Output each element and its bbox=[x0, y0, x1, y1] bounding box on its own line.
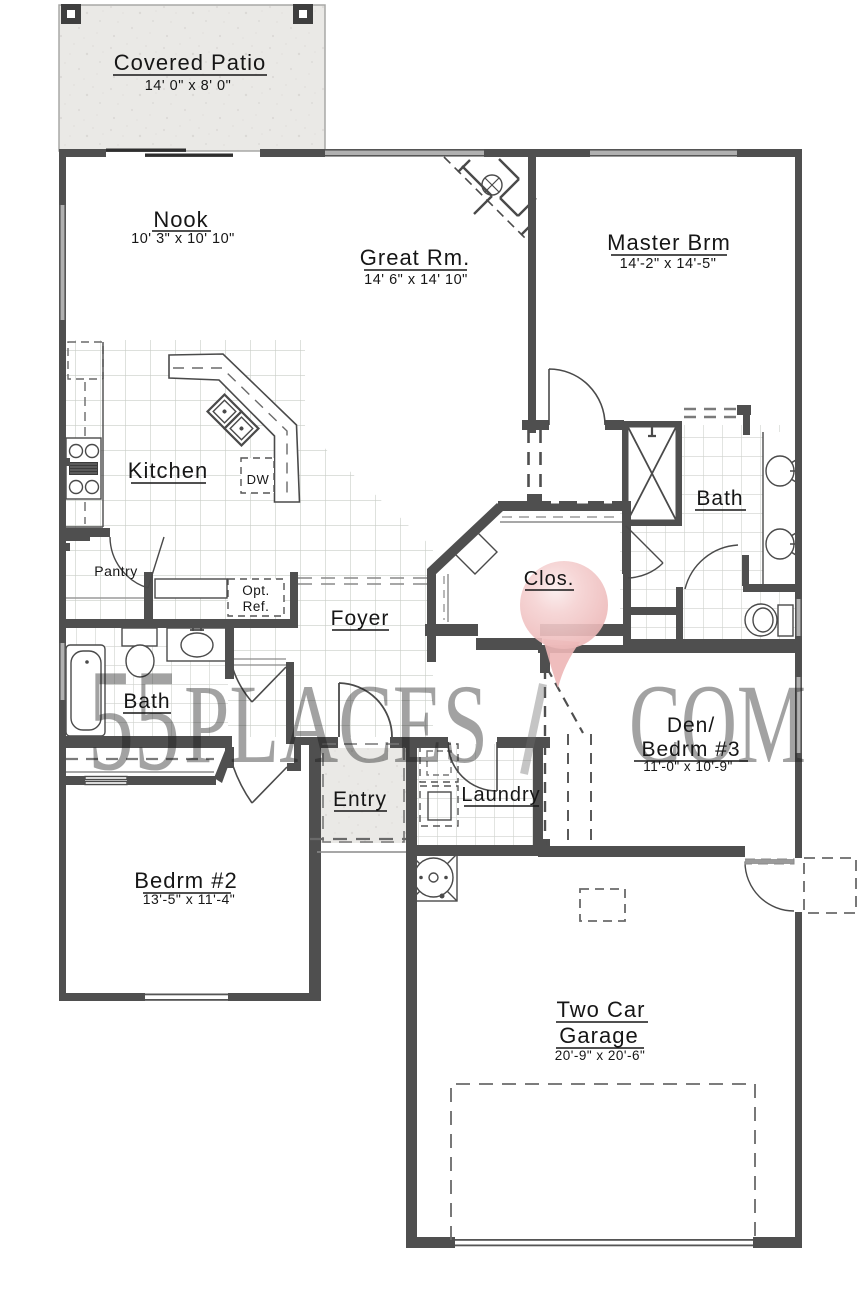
svg-text:Entry: Entry bbox=[333, 788, 387, 811]
svg-text:14' 6" x 14' 10": 14' 6" x 14' 10" bbox=[364, 272, 468, 288]
svg-text:Pantry: Pantry bbox=[94, 563, 137, 579]
svg-text:Ref.: Ref. bbox=[243, 599, 270, 614]
svg-text:Great Rm.: Great Rm. bbox=[360, 245, 470, 270]
svg-text:Kitchen: Kitchen bbox=[128, 458, 208, 483]
svg-text:Master Brm: Master Brm bbox=[607, 230, 731, 255]
svg-text:Laundry: Laundry bbox=[461, 784, 540, 806]
svg-text:14' 0" x 8' 0": 14' 0" x 8' 0" bbox=[145, 78, 232, 94]
svg-text:Bath: Bath bbox=[696, 487, 743, 510]
svg-text:55: 55 bbox=[88, 639, 180, 801]
svg-text:Opt.: Opt. bbox=[242, 583, 270, 598]
svg-text:14'-2" x 14'-5": 14'-2" x 14'-5" bbox=[620, 256, 717, 272]
svg-text:DW: DW bbox=[247, 472, 270, 487]
svg-text:PLACES: PLACES bbox=[184, 662, 488, 787]
svg-text:Two Car: Two Car bbox=[557, 997, 646, 1022]
svg-text:Garage: Garage bbox=[559, 1023, 638, 1048]
svg-text:Nook: Nook bbox=[153, 207, 208, 232]
svg-text:Covered Patio: Covered Patio bbox=[114, 50, 266, 75]
svg-text:13'-5" x 11'-4": 13'-5" x 11'-4" bbox=[143, 891, 236, 907]
svg-text:10' 3" x 10' 10": 10' 3" x 10' 10" bbox=[131, 231, 235, 247]
svg-text:Bedrm #2: Bedrm #2 bbox=[134, 868, 237, 893]
svg-text:COM: COM bbox=[629, 662, 806, 787]
svg-text:20'-9" x 20'-6": 20'-9" x 20'-6" bbox=[555, 1048, 646, 1063]
svg-text:Clos.: Clos. bbox=[524, 568, 575, 590]
svg-text:Foyer: Foyer bbox=[331, 607, 390, 630]
